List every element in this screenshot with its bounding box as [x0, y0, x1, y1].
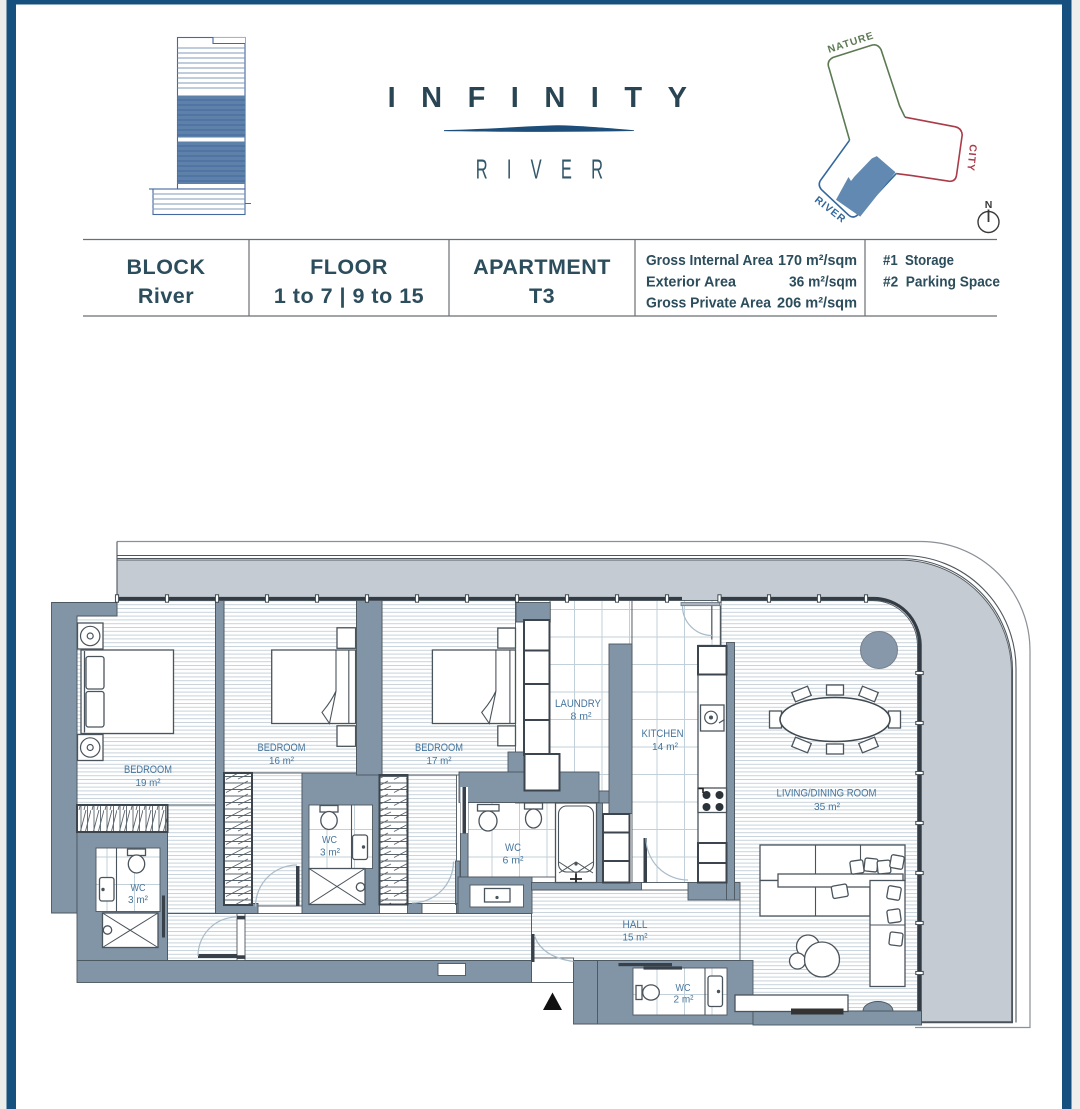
svg-text:River: River: [138, 284, 194, 308]
svg-text:LAUNDRY: LAUNDRY: [555, 698, 602, 710]
svg-text:KITCHEN: KITCHEN: [642, 728, 684, 740]
svg-text:INFINITY: INFINITY: [388, 82, 713, 114]
svg-text:8 m²: 8 m²: [571, 711, 593, 723]
svg-text:BEDROOM: BEDROOM: [415, 742, 463, 754]
svg-text:3 m²: 3 m²: [320, 848, 341, 859]
svg-text:WC: WC: [676, 982, 691, 994]
svg-text:19 m²: 19 m²: [136, 777, 161, 789]
svg-text:17 m²: 17 m²: [427, 755, 452, 767]
svg-text:BLOCK: BLOCK: [127, 255, 206, 279]
svg-text:206 m²/sqm: 206 m²/sqm: [777, 295, 857, 312]
svg-text:14 m²: 14 m²: [652, 741, 678, 753]
svg-text:WC: WC: [505, 842, 521, 854]
svg-text:N: N: [985, 199, 993, 211]
svg-text:WC: WC: [131, 882, 146, 894]
svg-text:LIVING/DINING ROOM: LIVING/DINING ROOM: [777, 788, 877, 800]
svg-text:1 to 7 | 9 to 15: 1 to 7 | 9 to 15: [274, 284, 424, 308]
svg-text:35 m²: 35 m²: [814, 801, 840, 813]
svg-text:HALL: HALL: [623, 919, 648, 931]
svg-text:170 m²/sqm: 170 m²/sqm: [778, 252, 857, 269]
svg-text:BEDROOM: BEDROOM: [258, 742, 306, 754]
svg-text:Gross Internal Area: Gross Internal Area: [646, 252, 774, 269]
svg-text:Gross Private Area: Gross Private Area: [646, 295, 772, 312]
svg-text:#2 Parking Space: #2 Parking Space: [883, 274, 1000, 291]
svg-text:2 m²: 2 m²: [674, 995, 695, 1006]
svg-text:T3: T3: [529, 284, 555, 308]
svg-text:BEDROOM: BEDROOM: [124, 764, 172, 776]
svg-text:15 m²: 15 m²: [623, 932, 648, 944]
svg-text:36 m²/sqm: 36 m²/sqm: [789, 274, 857, 291]
svg-text:APARTMENT: APARTMENT: [473, 255, 611, 279]
svg-text:16 m²: 16 m²: [269, 755, 294, 767]
svg-text:3 m²: 3 m²: [128, 895, 149, 906]
svg-text:Exterior Area: Exterior Area: [646, 274, 737, 291]
svg-text:#1 Storage: #1 Storage: [883, 252, 954, 269]
svg-text:6 m²: 6 m²: [503, 855, 525, 867]
svg-text:FLOOR: FLOOR: [310, 255, 388, 279]
svg-text:RIVER: RIVER: [476, 153, 622, 185]
svg-text:WC: WC: [322, 834, 337, 846]
